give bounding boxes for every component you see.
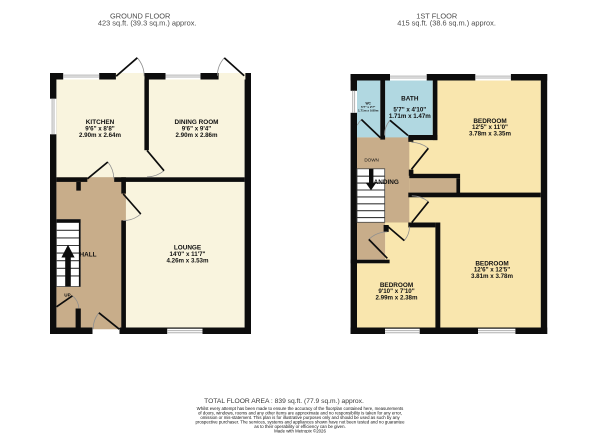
- svg-text:3.78m x 3.35m: 3.78m x 3.35m: [469, 130, 511, 137]
- svg-text:HALL: HALL: [79, 252, 96, 259]
- svg-text:UP: UP: [64, 293, 70, 298]
- svg-text:415 sq.ft. (38.6 sq.m.) approx: 415 sq.ft. (38.6 sq.m.) approx.: [397, 19, 496, 28]
- svg-text:2.90m x 2.64m: 2.90m x 2.64m: [79, 132, 121, 139]
- svg-text:2.90m x 2.86m: 2.90m x 2.86m: [176, 132, 218, 139]
- svg-text:1.71m x 1.47m: 1.71m x 1.47m: [389, 113, 431, 120]
- svg-text:1.71m x 0.80m: 1.71m x 0.80m: [358, 109, 379, 113]
- svg-text:423 sq.ft. (39.3 sq.m.) approx: 423 sq.ft. (39.3 sq.m.) approx.: [98, 19, 197, 28]
- svg-text:2.99m x 2.38m: 2.99m x 2.38m: [376, 295, 418, 302]
- svg-text:3.81m x 3.78m: 3.81m x 3.78m: [471, 273, 513, 280]
- svg-text:LANDING: LANDING: [370, 179, 399, 186]
- svg-text:Made with Metropix ©2026: Made with Metropix ©2026: [274, 429, 326, 433]
- svg-text:BATH: BATH: [401, 96, 419, 103]
- svg-text:4.26m x 3.53m: 4.26m x 3.53m: [167, 258, 209, 265]
- svg-text:DOWN: DOWN: [364, 158, 379, 163]
- svg-text:TOTAL FLOOR AREA : 839 sq.ft.: TOTAL FLOOR AREA : 839 sq.ft. (77.9 sq.m…: [204, 398, 364, 405]
